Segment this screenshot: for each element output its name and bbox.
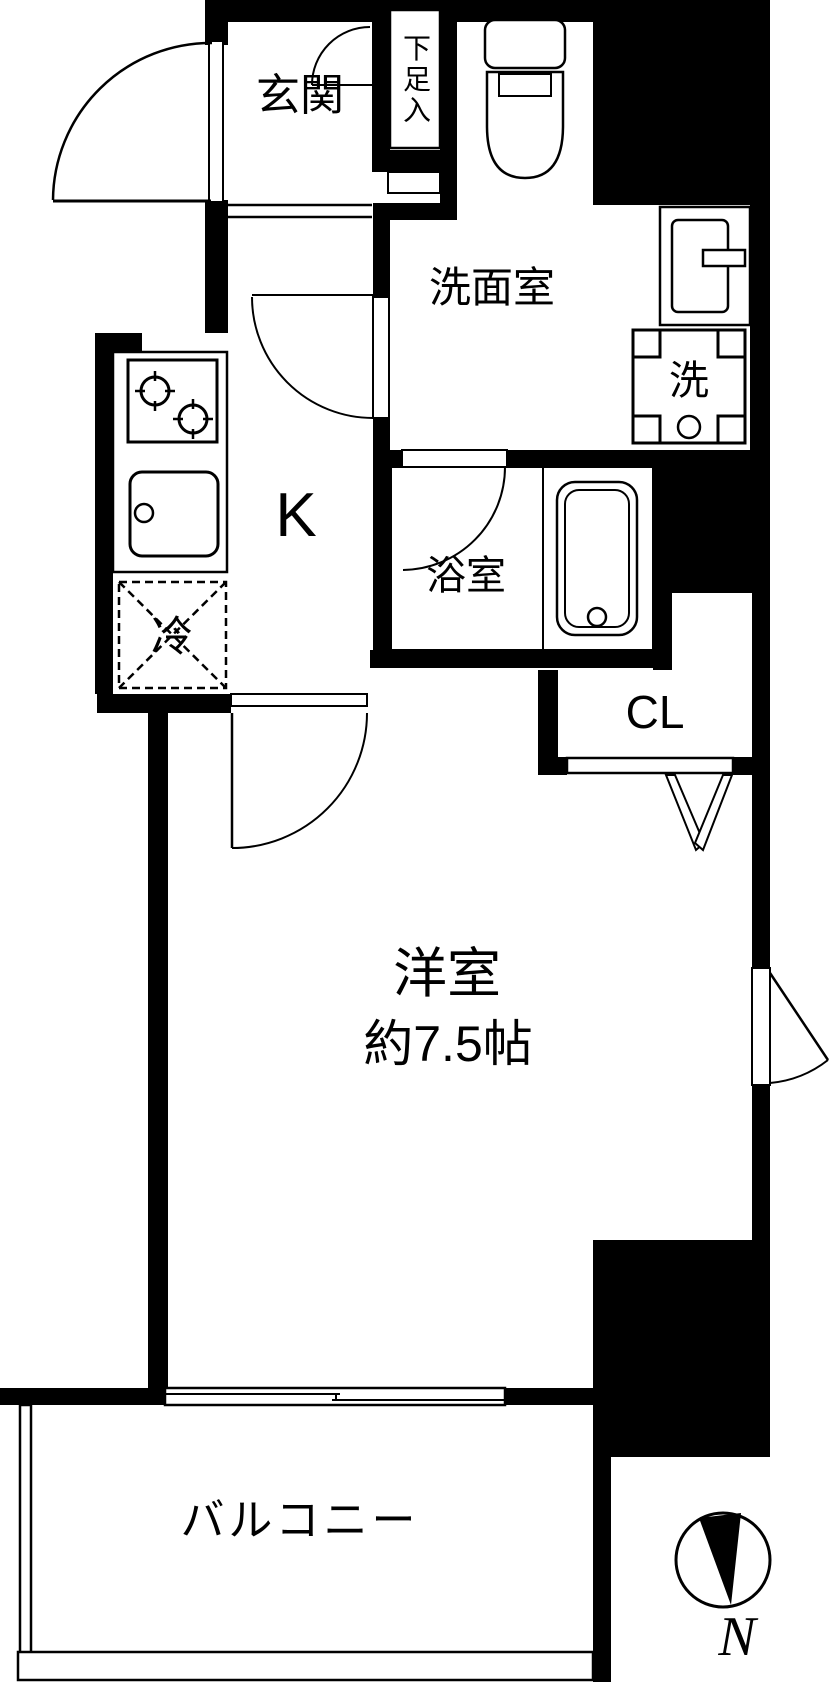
room-label-main-room: 洋室 — [393, 947, 501, 1001]
kitchen-room-door — [231, 694, 367, 848]
room-label-bathroom: 浴室 — [426, 556, 506, 596]
compass-north-label: N — [718, 1609, 755, 1665]
room-label-washer: 洗 — [669, 361, 709, 401]
stove-icon — [128, 360, 217, 442]
room-label-balcony: バルコニー — [180, 1499, 419, 1543]
entrance-door — [53, 41, 223, 202]
toilet-icon — [485, 20, 565, 178]
sink-icon — [130, 472, 218, 556]
closet-door — [567, 758, 733, 850]
balcony-window — [165, 1388, 505, 1405]
wash-basin-icon — [660, 207, 750, 325]
room-label-kitchen: K — [275, 485, 316, 547]
bathtub-icon — [557, 482, 637, 635]
room-label-shoe-cabinet: 下足入 — [401, 34, 429, 127]
floor-plan-linework — [0, 0, 829, 1682]
compass-icon — [676, 1513, 770, 1607]
room-label-entrance: 玄関 — [256, 74, 344, 118]
room-label-main-room-size: 約7.5帖 — [363, 1019, 533, 1069]
walls — [0, 0, 770, 1682]
floor-plan: 玄関 下足入 洗面室 K 冷 浴室 洗 CL 洋室 約7.5帖 バルコニー N — [0, 0, 829, 1682]
side-window — [752, 968, 828, 1085]
entry-step — [228, 205, 372, 217]
washroom-door — [252, 295, 389, 418]
room-label-washroom: 洗面室 — [429, 267, 555, 309]
room-label-refrigerator: 冷 — [151, 616, 193, 658]
room-label-closet: CL — [626, 689, 685, 735]
